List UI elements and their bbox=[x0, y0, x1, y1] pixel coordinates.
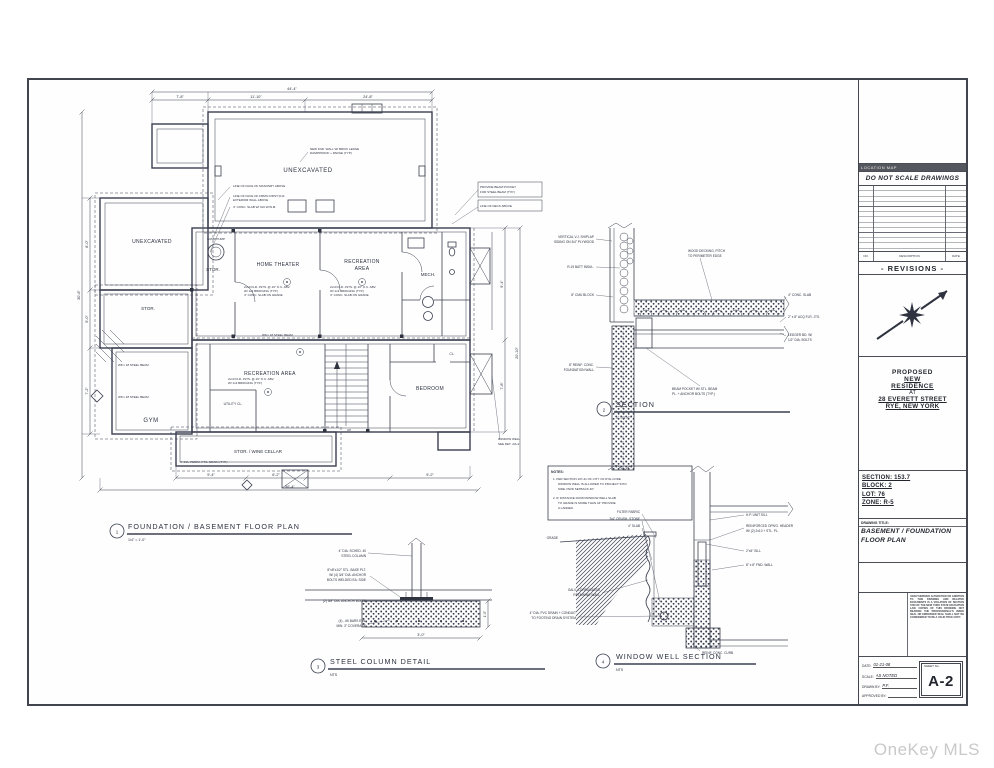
sheet-number-box: SHEET No. A-2 bbox=[919, 661, 963, 698]
floor-plan-labels: UNEXCAVATED UNEXCAVATED STOR. HOME THEAT… bbox=[77, 87, 520, 489]
title-block: LOCATION MAP DO NOT SCALE DRAWINGS NO. D… bbox=[858, 80, 966, 704]
room-label: AREA bbox=[355, 266, 370, 272]
dim: 44'-4" bbox=[287, 87, 297, 91]
parcel-block: BLOCK: 2 bbox=[862, 483, 966, 489]
drawing-title-line1: BASEMENT / FOUNDATION bbox=[859, 527, 966, 536]
plan-note: W8 x 18 STEEL BEAM bbox=[118, 363, 149, 367]
plan-note: W8 x 18 STEEL BEAM bbox=[262, 333, 293, 337]
well-label: GALV. CORRUGATED bbox=[568, 588, 601, 592]
approved-by-value bbox=[888, 697, 917, 698]
plan-title: FOUNDATION / BASEMENT FLOOR PLAN bbox=[128, 522, 300, 531]
dim: 8'-0" bbox=[85, 240, 89, 248]
dim: 6'-2" bbox=[272, 473, 280, 477]
plan-note: 4" CONC. SLAB ON GRADE bbox=[244, 293, 283, 297]
room-label: CL. bbox=[450, 352, 455, 356]
plan-note: SEE DET. 4/A-2 bbox=[498, 442, 520, 446]
callout-number: 3 bbox=[317, 665, 320, 670]
well-label: RETAINING WALL bbox=[573, 593, 600, 597]
dim: 3'-0" bbox=[417, 633, 425, 637]
revisions-title: - REVISIONS - bbox=[859, 262, 966, 275]
revision-col-divider bbox=[945, 186, 946, 252]
plan-callout: 1 FOUNDATION / BASEMENT FLOOR PLAN 1/4" … bbox=[110, 522, 352, 542]
drawing-sheet: UNEXCAVATED UNEXCAVATED STOR. HOME THEAT… bbox=[27, 78, 968, 706]
revision-col-description: DESCRIPTION bbox=[874, 252, 945, 261]
parcel-section: SECTION: 153.7 bbox=[862, 475, 966, 481]
well-label: 2"x6" SILL bbox=[746, 549, 761, 553]
callout-number: 2 bbox=[603, 408, 606, 413]
room-label: HOME THEATER bbox=[257, 262, 300, 268]
section-label: BEAM POCKET W/ STL. BEAM bbox=[672, 387, 718, 391]
onekey-mls-watermark: OneKey MLS bbox=[874, 740, 980, 760]
disclaimer-text: UNAUTHORIZED ALTERATION OR ADDITION TO T… bbox=[907, 593, 966, 656]
seal-box: UNAUTHORIZED ALTERATION OR ADDITION TO T… bbox=[859, 593, 966, 657]
well-note: 2. IF DISTANCE FROM WINDOW WELL SLAB bbox=[553, 496, 616, 500]
date-value: 01-21-08 bbox=[873, 662, 917, 668]
section-label: 8" CMU BLOCK bbox=[571, 293, 595, 297]
section-label: VERTICAL V.J. SHIPLAP bbox=[558, 235, 594, 239]
section-label: FOUNDATION WALL bbox=[564, 368, 595, 372]
column-detail-linework bbox=[305, 538, 492, 641]
well-note: 1. PER SECTION 197-41 OF CITY OF RYE COD… bbox=[553, 477, 621, 481]
revision-col-no: NO. bbox=[859, 252, 874, 261]
section-label: WOOD DECKING, PITCH bbox=[688, 249, 726, 253]
north-arrow-icon bbox=[859, 275, 965, 355]
plan-note: 4" CONC. SLAB ON GRADE bbox=[330, 293, 369, 297]
do-not-scale-note: DO NOT SCALE DRAWINGS bbox=[859, 172, 966, 186]
drawn-by-value: P.F. bbox=[882, 683, 917, 689]
sheet-no-value: A-2 bbox=[922, 669, 960, 695]
well-label: 4" SLAB bbox=[628, 524, 640, 528]
plan-note: FOR STEEL BEAM (TYP.) bbox=[480, 190, 515, 194]
column-label: (2) 5/8" DIA. ANCHOR BOLTS bbox=[323, 599, 366, 603]
well-label: 8" x 8" FND. WALL bbox=[746, 563, 773, 567]
revisions-table: NO. DESCRIPTION DATE bbox=[859, 186, 966, 262]
room-label: STOR. bbox=[141, 306, 155, 311]
column-label: 8"x8"x1/2" STL. BASE PLT. bbox=[327, 568, 366, 572]
revision-rows bbox=[859, 186, 966, 252]
dim: 9'-4" bbox=[500, 280, 504, 288]
room-label: GYM bbox=[143, 418, 158, 424]
section-title: SECTION bbox=[616, 400, 655, 409]
plan-note: W8 x 18 STEEL BEAM bbox=[118, 395, 149, 399]
dim: 20'-10" bbox=[515, 346, 519, 358]
dim: 24'-8" bbox=[363, 95, 373, 99]
project-proposed: PROPOSED bbox=[859, 369, 966, 376]
window-well-linework bbox=[548, 466, 793, 651]
well-callout: 4 WINDOW WELL SECTION NTS bbox=[596, 652, 756, 672]
parcel-lot: LOT: 76 bbox=[862, 492, 966, 498]
sump-pump-label: SUMP PUMP bbox=[207, 237, 225, 241]
parcel-zone: ZONE: R-5 bbox=[862, 500, 966, 506]
plan-note: LINE OF FACE OF MASONRY ABOVE bbox=[233, 184, 285, 188]
dim: 5'-0" bbox=[85, 315, 89, 323]
column-label: (4) - #5 BARS E.W. bbox=[339, 619, 367, 623]
plan-note: 4" CONC. SLAB W/ 6x6 W.W.M. bbox=[233, 205, 276, 209]
room-label: RECREATION bbox=[344, 259, 379, 265]
plan-note: PROVIDE BEAM POCKET bbox=[480, 185, 516, 189]
project-address1: 28 EVERETT STREET bbox=[859, 396, 966, 403]
well-note: TO GRADE IS MORE THAN 44" PROVIDE bbox=[558, 501, 616, 505]
column-scale: NTS bbox=[330, 673, 338, 677]
column-label: STEEL COLUMN bbox=[341, 554, 366, 558]
room-label: STOR. bbox=[206, 267, 220, 272]
dim: 9'-4" bbox=[207, 473, 215, 477]
plan-note: W/ 1x3 BRIDGING (TYP.) bbox=[228, 381, 262, 385]
project-new: NEW bbox=[859, 376, 966, 383]
plan-note: WINDOW WELL bbox=[498, 437, 520, 441]
section-label: 1/2" DIA. BOLTS bbox=[788, 338, 812, 342]
callout-number: 1 bbox=[116, 530, 119, 535]
section-label: PL. + ANCHOR BOLTS (TYP.) bbox=[672, 392, 715, 396]
north-arrow-box bbox=[859, 275, 966, 357]
dim: 30'-6" bbox=[77, 290, 81, 300]
dim: 7'-2" bbox=[85, 387, 89, 395]
room-label: UNEXCAVATED bbox=[132, 239, 172, 245]
dim: 7'-8" bbox=[500, 382, 504, 390]
callout-number: 4 bbox=[602, 660, 605, 665]
revision-header: NO. DESCRIPTION DATE bbox=[859, 251, 966, 261]
room-label: BEDROOM bbox=[416, 386, 444, 392]
revision-col-date: DATE bbox=[945, 252, 966, 261]
section-label: SIDING ON 3/4" PLYWOOD bbox=[554, 240, 595, 244]
scale-label: SCALE: bbox=[862, 675, 874, 679]
location-map-box bbox=[859, 80, 966, 164]
room-label: STOR. / WINE CELLAR bbox=[234, 449, 283, 454]
column-title: STEEL COLUMN DETAIL bbox=[330, 657, 431, 666]
column-callout: 3 STEEL COLUMN DETAIL NTS bbox=[311, 657, 545, 677]
plan-note: LINE OF DECK ABOVE bbox=[480, 204, 512, 208]
window-well-labels: NOTES: 1. PER SECTION 197-41 OF CITY OF … bbox=[530, 470, 794, 655]
approved-by-label: APPROVED BY: bbox=[862, 694, 886, 698]
plan-note: EXTERIOR WALL ABOVE bbox=[233, 198, 268, 202]
drawing-title-line2: FLOOR PLAN bbox=[859, 536, 966, 545]
section-label: LEDGER BD. W/ bbox=[788, 333, 812, 337]
drawn-by-label: DRAWN BY: bbox=[862, 685, 880, 689]
column-label: BOLTS WELDED EA. SIDE bbox=[327, 578, 366, 582]
wall-section-linework bbox=[596, 223, 789, 470]
well-label: 3/4" CRUSH. STONE bbox=[610, 517, 640, 521]
well-label: TO FOOTING DRAIN SYSTEM bbox=[531, 616, 576, 620]
revision-col-divider bbox=[873, 186, 874, 252]
plan-note: DAMPPROOF + PARGE (TYP.) bbox=[310, 151, 352, 155]
dim: 1'-0" bbox=[483, 611, 487, 617]
section-label: R-19 BATT INSUL. bbox=[567, 265, 594, 269]
project-address2: RYE, NEW YORK bbox=[859, 403, 966, 410]
well-title: WINDOW WELL SECTION bbox=[616, 652, 722, 661]
well-label: W/ (2) 2x10 + STL. PL. bbox=[746, 529, 779, 533]
dim: 56'-4" bbox=[285, 485, 295, 489]
column-label: W/ (4) 3/4" DIA. ANCHOR bbox=[329, 573, 366, 577]
signoff-fields: DATE:01-21-08 SCALE:AS NOTED DRAWN BY:P.… bbox=[859, 657, 919, 704]
well-note: SIDE YARD SETBACK 40". bbox=[558, 487, 595, 491]
spare-box bbox=[859, 563, 966, 593]
well-label: REINFORCED OPN'G. HEADER bbox=[746, 524, 794, 528]
parcel-info: SECTION: 153.7 BLOCK: 2 LOT: 76 ZONE: R-… bbox=[859, 471, 966, 519]
well-label: 4" DIA. PVC DRAIN + CONDUIT bbox=[530, 611, 576, 615]
drawing-title-label: DRAWING TITLE: bbox=[859, 519, 966, 527]
project-info: PROPOSED NEW RESIDENCE AT 28 EVERETT STR… bbox=[859, 357, 966, 471]
project-residence: RESIDENCE bbox=[859, 383, 966, 390]
seal-stamp-area bbox=[859, 593, 907, 656]
well-label: GRADE bbox=[547, 536, 558, 540]
date-label: DATE: bbox=[862, 664, 871, 668]
notes-title: NOTES: bbox=[551, 470, 564, 474]
section-label: 8" REINF. CONC. bbox=[569, 363, 594, 367]
well-note: A LADDER. bbox=[558, 506, 574, 510]
plan-scale: 1/4" = 1'-0" bbox=[128, 538, 146, 542]
stair-up-label: UP bbox=[347, 428, 351, 432]
section-label: 2" x 8" ACQ FLR. JTS. bbox=[788, 315, 820, 319]
dim: 11'-10" bbox=[250, 95, 262, 99]
scale-value: AS NOTED bbox=[876, 673, 917, 679]
plan-note: 4" DIA. PERIM. FTG. DRAIN (TYP.) bbox=[180, 460, 228, 464]
room-label: UTILITY CL. bbox=[224, 402, 243, 406]
section-label: TO PERIMETER EDGE bbox=[688, 254, 722, 258]
room-label: MECH. bbox=[421, 272, 436, 277]
drawing-area: UNEXCAVATED UNEXCAVATED STOR. HOME THEAT… bbox=[29, 80, 860, 704]
section-label: 4" CONC. SLAB bbox=[788, 293, 811, 297]
dim: 7'-8" bbox=[176, 95, 184, 99]
room-label: UNEXCAVATED bbox=[283, 168, 332, 174]
well-scale: NTS bbox=[616, 668, 624, 672]
drawing-title-box: DRAWING TITLE: BASEMENT / FOUNDATION FLO… bbox=[859, 519, 966, 563]
column-label: 4" DIA. SCHED. 40 bbox=[339, 549, 367, 553]
dim: 9'-2" bbox=[426, 473, 434, 477]
well-note: WINDOW WELL IS ALLOWED TO PROJECT INTO bbox=[558, 482, 627, 486]
well-label: FILTER FABRIC bbox=[617, 510, 641, 514]
signoff-box: DATE:01-21-08 SCALE:AS NOTED DRAWN BY:P.… bbox=[859, 657, 966, 704]
location-map-label: LOCATION MAP bbox=[859, 164, 966, 172]
well-label: H.P. UNIT SILL bbox=[746, 513, 768, 517]
column-label: MIN. 3" COVERAGE bbox=[337, 624, 366, 628]
section-scale: 1" = 1'-0" bbox=[616, 416, 631, 420]
